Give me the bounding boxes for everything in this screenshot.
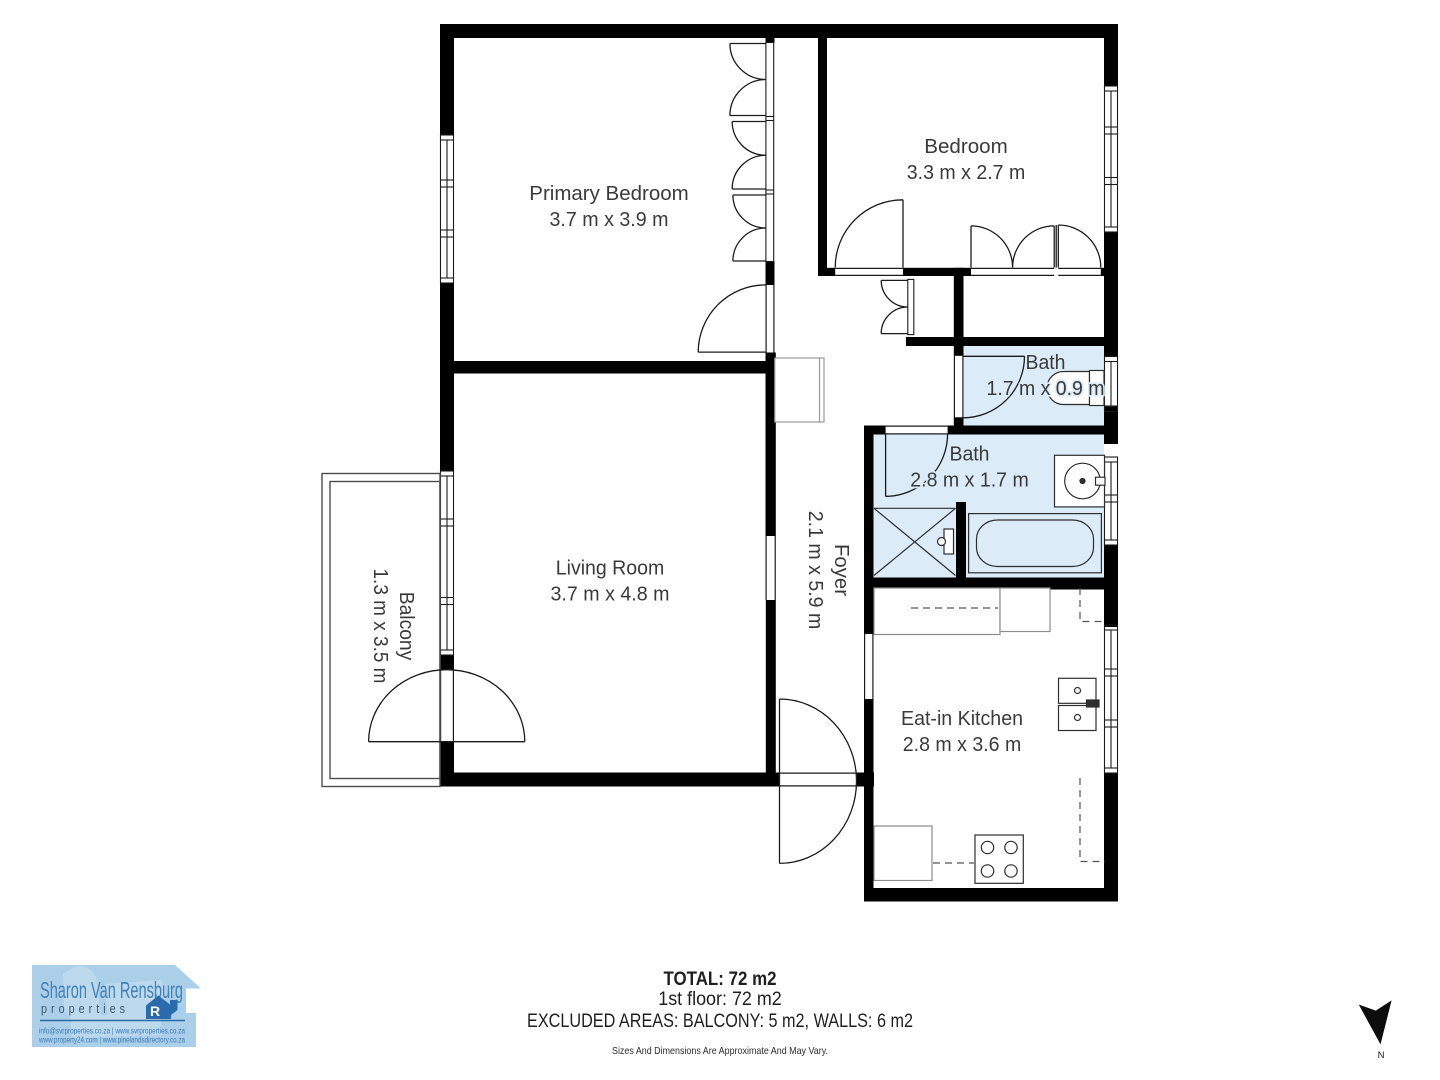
svg-text:3.7 m x 3.9 m: 3.7 m x 3.9 m	[550, 208, 669, 231]
svg-text:www.property24.com | www.pinel: www.property24.com | www.pinelandsdirect…	[38, 1036, 185, 1045]
svg-text:Bath: Bath	[1026, 351, 1066, 374]
svg-text:Primary Bedroom: Primary Bedroom	[529, 182, 688, 205]
svg-text:Eat-in Kitchen: Eat-in Kitchen	[901, 707, 1023, 730]
svg-text:Living Room: Living Room	[556, 557, 665, 580]
svg-text:R: R	[150, 1003, 160, 1019]
svg-text:1st floor: 72 m2: 1st floor: 72 m2	[658, 989, 782, 1010]
svg-text:N: N	[1378, 1050, 1385, 1061]
svg-text:2.1 m x 5.9 m: 2.1 m x 5.9 m	[804, 511, 827, 630]
svg-text:Balcony: Balcony	[395, 592, 418, 661]
svg-text:EXCLUDED AREAS: BALCONY: 5 m2,: EXCLUDED AREAS: BALCONY: 5 m2, WALLS: 6 …	[527, 1011, 913, 1032]
svg-text:2.8 m x 3.6 m: 2.8 m x 3.6 m	[903, 733, 1022, 756]
svg-text:TOTAL: 72 m2: TOTAL: 72 m2	[664, 969, 777, 990]
svg-text:2.8 m x 1.7 m: 2.8 m x 1.7 m	[910, 469, 1029, 492]
svg-text:3.3 m x 2.7 m: 3.3 m x 2.7 m	[907, 161, 1026, 184]
svg-text:Bath: Bath	[950, 443, 990, 466]
svg-text:3.7 m x 4.8 m: 3.7 m x 4.8 m	[551, 583, 670, 606]
svg-text:properties: properties	[41, 1002, 129, 1016]
svg-text:1.7 m x 0.9 m: 1.7 m x 0.9 m	[987, 377, 1105, 400]
svg-text:info@svrproperties.co.za | www: info@svrproperties.co.za | www.svrproper…	[39, 1027, 185, 1036]
svg-text:Foyer: Foyer	[830, 544, 853, 596]
svg-text:Bedroom: Bedroom	[924, 135, 1008, 158]
svg-text:1.3 m x 3.5 m: 1.3 m x 3.5 m	[369, 569, 392, 684]
svg-text:Sizes And Dimensions Are Appro: Sizes And Dimensions Are Approximate And…	[612, 1045, 828, 1057]
